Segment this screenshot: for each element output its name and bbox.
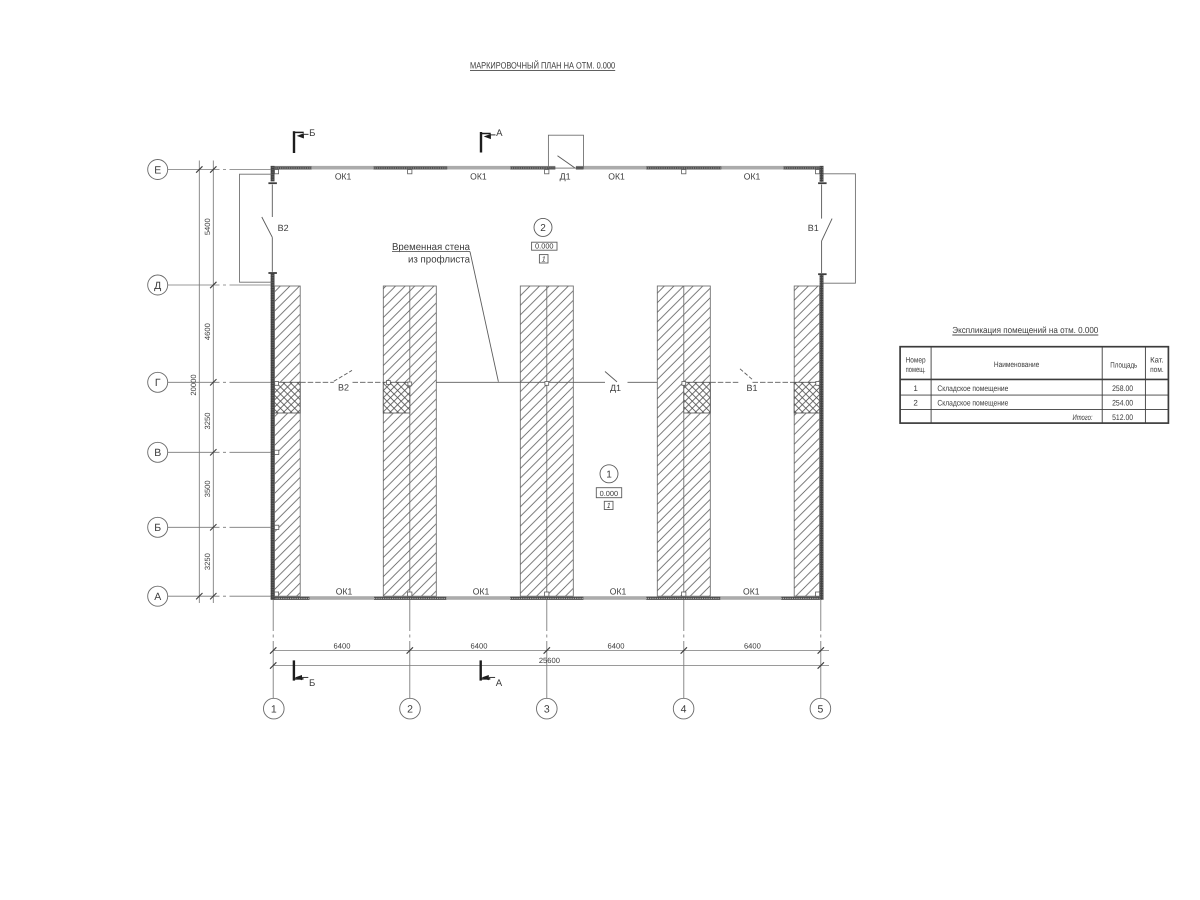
svg-text:512.00: 512.00 bbox=[1112, 413, 1133, 422]
svg-text:МАРКИРОВОЧНЫЙ ПЛАН НА ОТМ. 0.0: МАРКИРОВОЧНЫЙ ПЛАН НА ОТМ. 0.000 bbox=[470, 60, 615, 71]
svg-text:254.00: 254.00 bbox=[1112, 399, 1133, 408]
svg-text:ОК1: ОК1 bbox=[610, 587, 627, 597]
svg-text:1: 1 bbox=[606, 470, 612, 481]
svg-text:Номер: Номер bbox=[906, 356, 927, 365]
svg-text:А: А bbox=[496, 128, 503, 139]
svg-text:ОК1: ОК1 bbox=[470, 171, 487, 181]
svg-text:Д: Д bbox=[154, 280, 161, 292]
svg-text:Площадь: Площадь bbox=[1110, 361, 1137, 370]
svg-text:4: 4 bbox=[681, 704, 687, 716]
svg-text:Б: Б bbox=[309, 128, 315, 139]
svg-text:В1: В1 bbox=[746, 383, 757, 393]
svg-text:1: 1 bbox=[271, 704, 277, 716]
svg-text:2: 2 bbox=[407, 704, 413, 716]
svg-text:Экспликация помещений на отм.: Экспликация помещений на отм. 0.000 bbox=[952, 325, 1098, 335]
svg-text:6400: 6400 bbox=[334, 641, 351, 650]
svg-text:ОК1: ОК1 bbox=[336, 587, 353, 597]
svg-text:ОК1: ОК1 bbox=[473, 587, 490, 597]
svg-text:0.000: 0.000 bbox=[600, 489, 619, 498]
svg-text:4600: 4600 bbox=[203, 323, 212, 340]
svg-text:3250: 3250 bbox=[203, 553, 212, 570]
svg-text:2: 2 bbox=[540, 223, 546, 234]
svg-text:1: 1 bbox=[542, 254, 546, 263]
svg-text:А: А bbox=[154, 591, 161, 603]
svg-text:помещ.: помещ. bbox=[906, 365, 926, 374]
svg-text:Итого:: Итого: bbox=[1073, 413, 1093, 422]
svg-text:ОК1: ОК1 bbox=[744, 171, 761, 181]
svg-text:6400: 6400 bbox=[608, 641, 625, 650]
svg-text:Г: Г bbox=[155, 377, 161, 389]
svg-text:Кат.: Кат. bbox=[1150, 356, 1164, 365]
svg-text:Складское помещение: Складское помещение bbox=[937, 399, 1008, 408]
svg-text:25600: 25600 bbox=[539, 656, 560, 665]
svg-text:258.00: 258.00 bbox=[1112, 384, 1133, 393]
svg-text:1: 1 bbox=[607, 501, 611, 510]
svg-text:Д1: Д1 bbox=[560, 171, 571, 181]
svg-text:Складское помещение: Складское помещение bbox=[937, 384, 1008, 393]
svg-text:В2: В2 bbox=[338, 383, 349, 393]
svg-text:из профлиста: из профлиста bbox=[408, 255, 470, 266]
svg-text:3: 3 bbox=[544, 704, 550, 716]
svg-text:Д1: Д1 bbox=[610, 383, 621, 393]
svg-text:2: 2 bbox=[913, 399, 918, 408]
svg-text:3500: 3500 bbox=[203, 480, 212, 497]
svg-text:Б: Б bbox=[154, 522, 161, 534]
svg-text:В: В bbox=[154, 447, 161, 459]
svg-text:3250: 3250 bbox=[203, 413, 212, 430]
svg-text:5400: 5400 bbox=[203, 218, 212, 235]
svg-text:Наименование: Наименование bbox=[994, 360, 1040, 369]
svg-text:ОК1: ОК1 bbox=[335, 171, 352, 181]
svg-text:5: 5 bbox=[817, 704, 823, 716]
svg-text:ОК1: ОК1 bbox=[608, 171, 625, 181]
svg-text:ОК1: ОК1 bbox=[743, 587, 760, 597]
svg-text:6400: 6400 bbox=[471, 641, 488, 650]
svg-text:В2: В2 bbox=[278, 223, 289, 233]
svg-text:В1: В1 bbox=[808, 223, 819, 233]
svg-text:Е: Е bbox=[154, 164, 161, 176]
svg-text:1: 1 bbox=[913, 384, 918, 393]
svg-text:Б: Б bbox=[309, 678, 315, 689]
svg-text:6400: 6400 bbox=[744, 641, 761, 650]
svg-text:0.000: 0.000 bbox=[535, 242, 554, 251]
svg-text:А: А bbox=[496, 678, 503, 689]
svg-text:пом.: пом. bbox=[1150, 365, 1164, 374]
svg-text:20000: 20000 bbox=[189, 374, 198, 395]
